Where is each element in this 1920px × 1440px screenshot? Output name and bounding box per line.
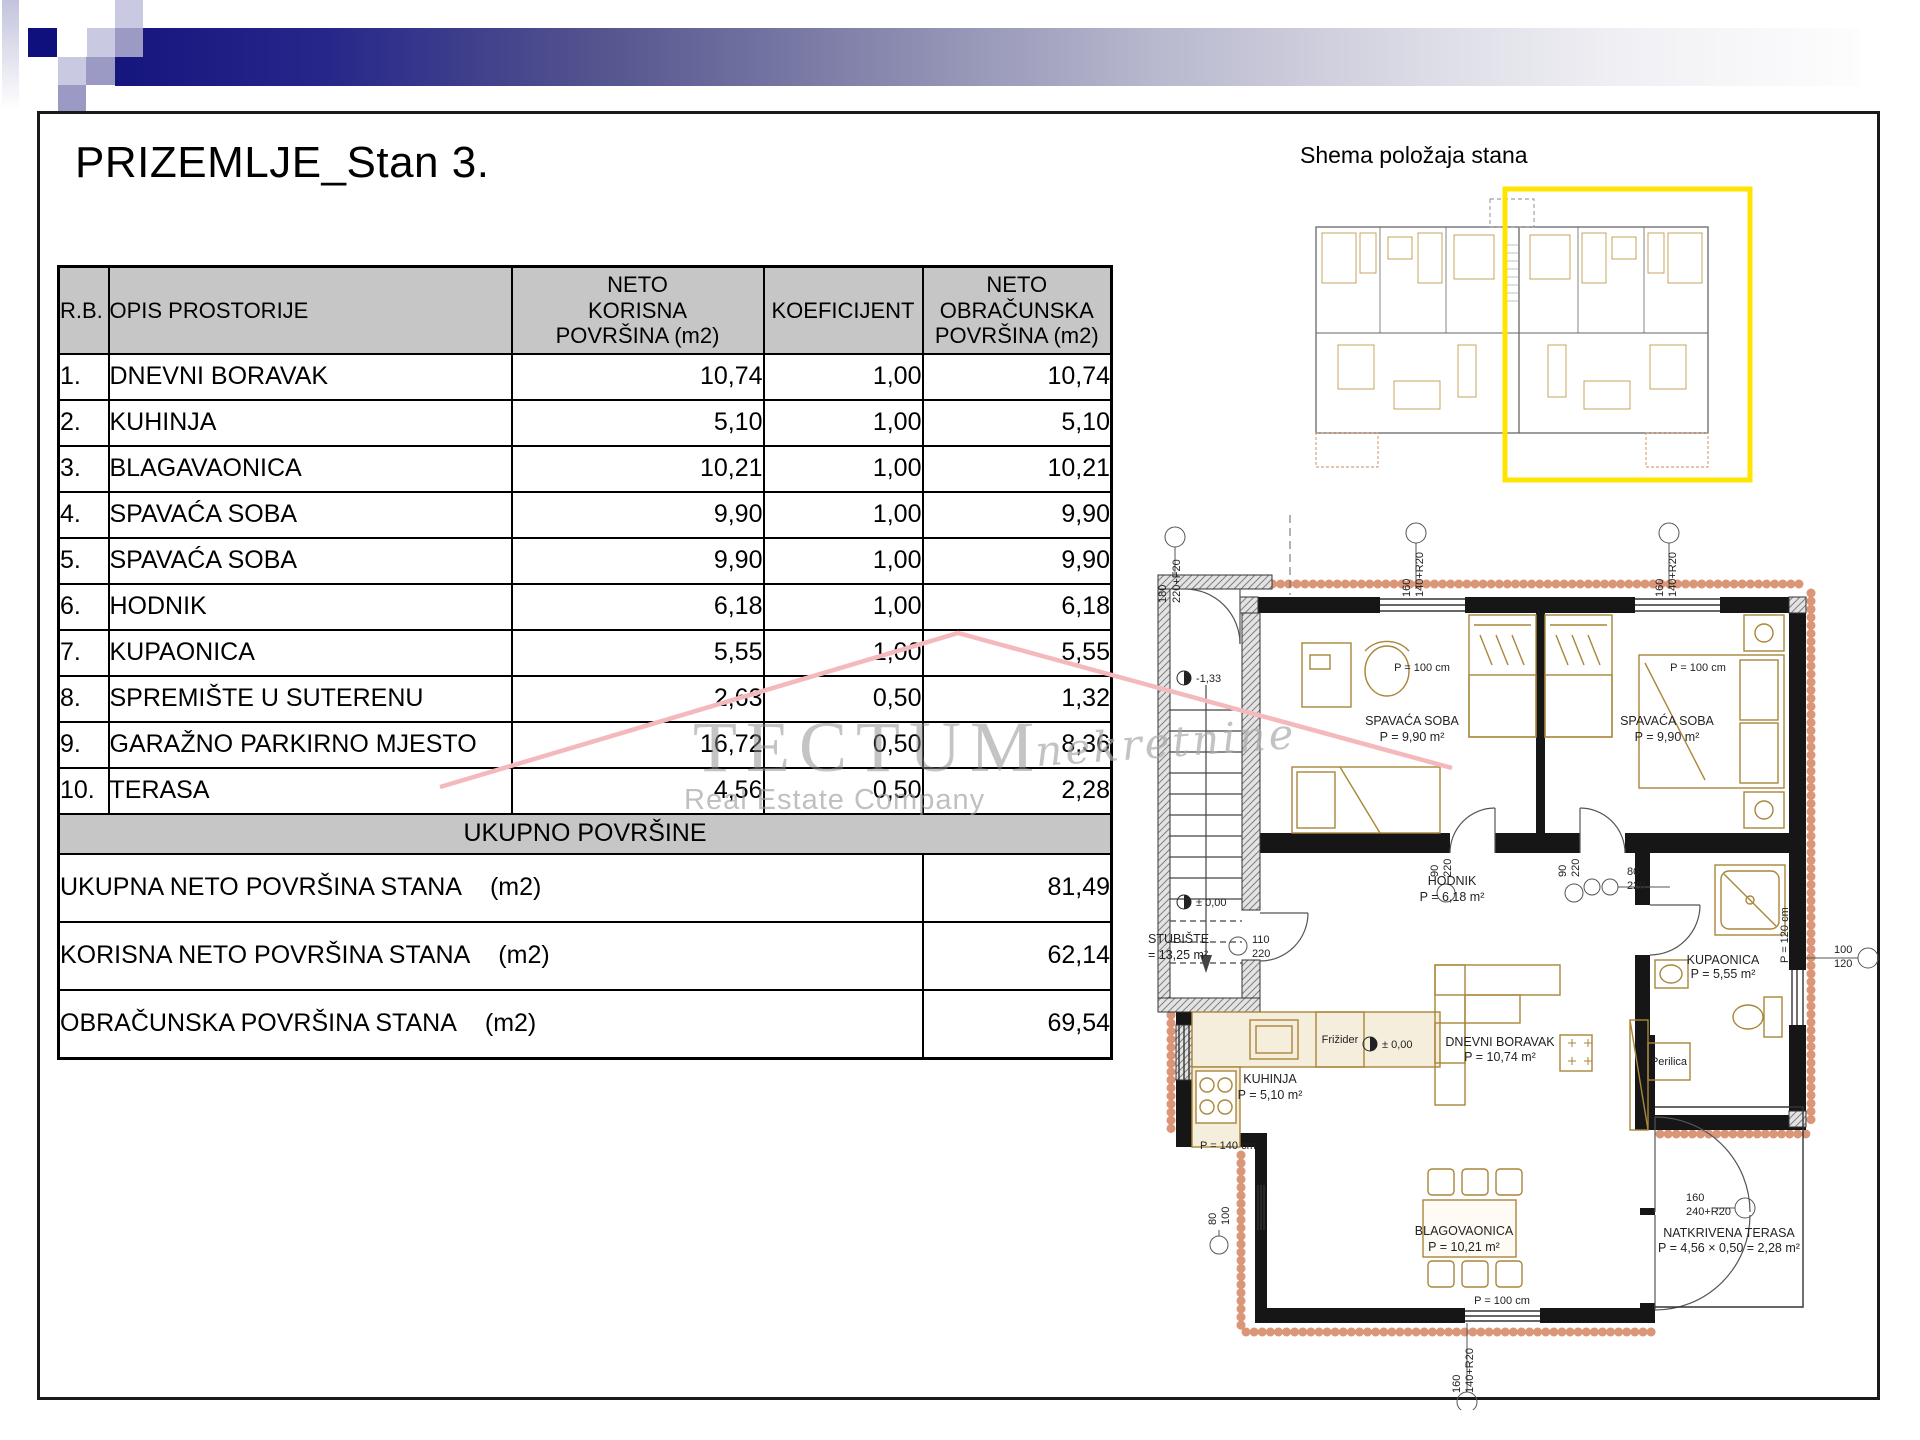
table-row: 7.KUPAONICA5,551,005,55 bbox=[59, 630, 1112, 676]
svg-text:P = 100 cm: P = 100 cm bbox=[1474, 1295, 1530, 1307]
room-label: BLAGOVAONICA bbox=[1415, 1224, 1514, 1238]
room-area: P = 5,10 m² bbox=[1238, 1088, 1303, 1102]
table-row: 9.GARAŽNO PARKIRNO MJESTO16,720,508,36 bbox=[59, 722, 1112, 768]
svg-text:± 0,00: ± 0,00 bbox=[1382, 1039, 1413, 1051]
level-markers bbox=[1177, 671, 1377, 1051]
table-row: 1.DNEVNI BORAVAK10,741,0010,74 bbox=[59, 354, 1112, 400]
room-area: P = 9,90 m² bbox=[1635, 730, 1700, 744]
svg-text:140+R20: 140+R20 bbox=[1464, 1348, 1476, 1393]
svg-text:100: 100 bbox=[1834, 944, 1852, 956]
banner-square-light bbox=[58, 57, 86, 85]
room-area: P = 6,18 m² bbox=[1420, 890, 1485, 904]
svg-text:P = 120 cm: P = 120 cm bbox=[1779, 907, 1791, 963]
room-label: SPAVAĆA SOBA bbox=[1620, 713, 1714, 728]
svg-text:80: 80 bbox=[1207, 1213, 1219, 1225]
svg-text:P = 100 cm: P = 100 cm bbox=[1394, 662, 1450, 674]
banner-left-strip bbox=[2, 0, 19, 110]
room-label: SPAVAĆA SOBA bbox=[1365, 713, 1459, 728]
svg-text:140+R20: 140+R20 bbox=[1667, 552, 1679, 597]
svg-text:160: 160 bbox=[1401, 579, 1413, 597]
room-label: KUHINJA bbox=[1243, 1072, 1297, 1086]
table-row: 8.SPREMIŠTE U SUTERENU2,630,501,32 bbox=[59, 676, 1112, 722]
summary-unit: (m2) bbox=[490, 873, 541, 901]
svg-text:± 0,00: ± 0,00 bbox=[1196, 897, 1227, 909]
table-row: 6.HODNIK6,181,006,18 bbox=[59, 584, 1112, 630]
svg-text:P = 140 cm: P = 140 cm bbox=[1200, 1140, 1256, 1152]
summary-label: OBRAČUNSKA POVRŠINA STANA bbox=[60, 1009, 457, 1037]
svg-text:P = 100 cm: P = 100 cm bbox=[1670, 662, 1726, 674]
summary-label: KORISNA NETO POVRŠINA STANA bbox=[60, 941, 470, 969]
svg-text:120: 120 bbox=[1834, 958, 1852, 970]
table-row: 4.SPAVAĆA SOBA9,901,009,90 bbox=[59, 492, 1112, 538]
room-area: P = 10,74 m² bbox=[1464, 1050, 1536, 1064]
total-band-label: UKUPNO POVRŠINE bbox=[59, 814, 1112, 854]
summary-row: UKUPNA NETO POVRŠINA STANA(m2) 81,49 bbox=[59, 854, 1112, 922]
summary-unit: (m2) bbox=[485, 1009, 536, 1037]
page-title: PRIZEMLJE_Stan 3. bbox=[75, 138, 489, 188]
svg-text:160: 160 bbox=[1686, 1192, 1704, 1204]
col-header-korisna: NETO KORISNA POVRŠINA (m2) bbox=[512, 267, 764, 354]
staircase bbox=[1170, 685, 1242, 973]
svg-text:220+F20: 220+F20 bbox=[1171, 559, 1183, 603]
room-area: P = 9,90 m² bbox=[1380, 730, 1445, 744]
summary-value: 69,54 bbox=[923, 990, 1112, 1059]
table-row: 3.BLAGAVAONICA10,211,0010,21 bbox=[59, 446, 1112, 492]
room-area: P = 5,55 m² bbox=[1691, 967, 1756, 981]
washer-label: Perilica bbox=[1651, 1056, 1688, 1068]
fridge-label: Frižider bbox=[1322, 1034, 1359, 1046]
svg-text:220: 220 bbox=[1570, 859, 1582, 877]
svg-text:240+R20: 240+R20 bbox=[1686, 1206, 1731, 1218]
room-area: P = 4,56 × 0,50 = 2,28 m² bbox=[1658, 1241, 1800, 1255]
stair-label: STUBIŠTE = 13,25 m² bbox=[1148, 931, 1209, 962]
room-labels: SPAVAĆA SOBA P = 9,90 m² SPAVAĆA SOBA P … bbox=[1238, 713, 1800, 1255]
svg-text:140+R20: 140+R20 bbox=[1414, 552, 1426, 597]
table-row: 5.SPAVAĆA SOBA9,901,009,90 bbox=[59, 538, 1112, 584]
svg-text:160: 160 bbox=[1654, 579, 1666, 597]
svg-text:80: 80 bbox=[1627, 866, 1639, 878]
summary-unit: (m2) bbox=[498, 941, 549, 969]
svg-text:110: 110 bbox=[1252, 934, 1270, 946]
banner-square-light bbox=[115, 0, 143, 28]
total-band-row: UKUPNO POVRŠINE bbox=[59, 814, 1112, 854]
summary-label: UKUPNA NETO POVRŠINA STANA bbox=[60, 873, 462, 901]
room-label: DNEVNI BORAVAK bbox=[1445, 1035, 1555, 1049]
svg-text:160: 160 bbox=[1451, 1375, 1463, 1393]
col-header-opis: OPIS PROSTORIJE bbox=[109, 267, 512, 354]
banner-square-dark bbox=[28, 28, 57, 57]
schema-mini-floorplan bbox=[1308, 185, 1758, 490]
banner-bar bbox=[115, 28, 1860, 86]
summary-row-bold: OBRAČUNSKA POVRŠINA STANA(m2) 69,54 bbox=[59, 990, 1112, 1059]
banner-square-medium bbox=[115, 28, 143, 57]
banner-square-medium bbox=[86, 57, 115, 85]
areas-table: R.B. OPIS PROSTORIJE NETO KORISNA POVRŠI… bbox=[57, 265, 1113, 1060]
banner-square-medium bbox=[58, 85, 86, 112]
svg-text:220: 220 bbox=[1442, 859, 1454, 877]
col-header-koeficijent: KOEFICIJENT bbox=[764, 267, 923, 354]
col-header-rb: R.B. bbox=[59, 267, 109, 354]
col-header-obracunska: NETO OBRAČUNSKA POVRŠINA (m2) bbox=[923, 267, 1112, 354]
svg-text:220: 220 bbox=[1252, 948, 1270, 960]
svg-text:220: 220 bbox=[1627, 880, 1645, 892]
svg-text:-1,33: -1,33 bbox=[1196, 673, 1221, 685]
room-label: NATKRIVENA TERASA bbox=[1663, 1226, 1795, 1240]
room-area: P = 10,21 m² bbox=[1428, 1240, 1500, 1254]
banner-square-light bbox=[87, 28, 115, 57]
summary-value: 81,49 bbox=[923, 854, 1112, 922]
svg-text:100: 100 bbox=[1220, 1207, 1232, 1225]
svg-text:90: 90 bbox=[1429, 865, 1441, 877]
svg-text:180: 180 bbox=[1157, 585, 1169, 603]
room-area: = 13,25 m² bbox=[1148, 948, 1208, 962]
table-header-row: R.B. OPIS PROSTORIJE NETO KORISNA POVRŠI… bbox=[59, 267, 1112, 354]
summary-value: 62,14 bbox=[923, 922, 1112, 990]
room-label: KUPAONICA bbox=[1687, 953, 1760, 967]
floor-plan: SPAVAĆA SOBA P = 9,90 m² SPAVAĆA SOBA P … bbox=[1140, 515, 1900, 1410]
svg-text:90: 90 bbox=[1557, 865, 1569, 877]
table-row: 10.TERASA4,560,502,28 bbox=[59, 768, 1112, 814]
table-row: 2.KUHINJA5,101,005,10 bbox=[59, 400, 1112, 446]
summary-row: KORISNA NETO POVRŠINA STANA(m2) 62,14 bbox=[59, 922, 1112, 990]
schema-title: Shema položaja stana bbox=[1300, 142, 1528, 169]
room-label: STUBIŠTE bbox=[1148, 931, 1209, 946]
